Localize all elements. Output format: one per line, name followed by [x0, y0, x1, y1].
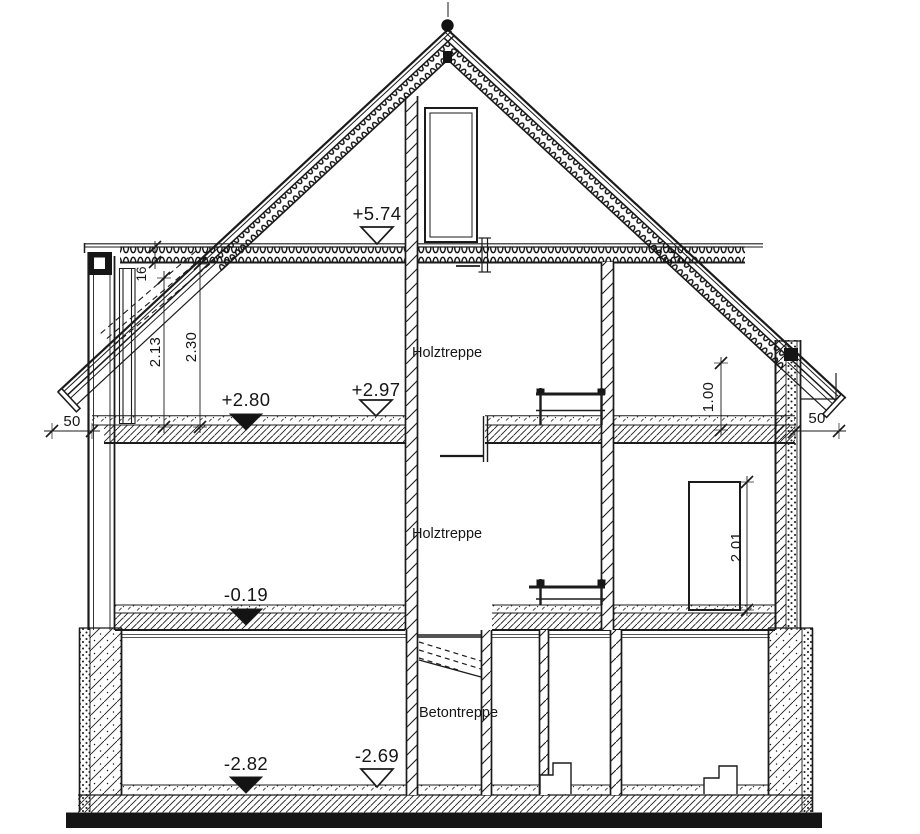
railing-ground-floor [529, 579, 606, 605]
elevation-marker-collar-ceiling [361, 227, 393, 244]
roof-slope-right [430, 30, 846, 418]
elevation-label-basement-finish-floor: -2.69 [355, 745, 399, 766]
basement-concrete-stair [418, 636, 481, 677]
section-drawing: +5.74 +2.97 +2.80 -0.19 -2.69 -2.82 2.13… [0, 0, 920, 834]
room-label-attic-stair: Holztreppe [412, 345, 482, 361]
dimension-label-attic-clear-height-a: 2.13 [147, 337, 164, 367]
architectural-section-sheet: +5.74 +2.97 +2.80 -0.19 -2.69 -2.82 2.13… [0, 0, 920, 834]
elevation-label-attic-raw-floor: +2.80 [222, 389, 271, 410]
dimension-label-eaves-overhang-left: 50 [63, 413, 80, 430]
elevation-markers [230, 227, 393, 793]
basement-wall-right [768, 628, 813, 812]
dimension-label-knee-wall-height: 1.00 [700, 382, 717, 412]
eaves-purlin-right [784, 348, 798, 361]
elevation-label-collar-ceiling: +5.74 [353, 203, 402, 224]
elevation-marker-basement-finish-floor [361, 769, 393, 787]
elevation-label-ground-raw-floor: -0.19 [224, 584, 268, 605]
basement-wall-left [79, 628, 122, 812]
dimension-label-collar-beam-depth: 16 [134, 266, 149, 281]
dimension-label-eaves-overhang-right: 50 [808, 410, 825, 427]
attic-floor-slab [92, 373, 836, 443]
stair-opening-trimmer [440, 416, 488, 462]
foundation-strip [66, 813, 822, 828]
dimension-label-attic-clear-height-b: 2.30 [183, 332, 200, 362]
ground-floor-slab [115, 605, 775, 638]
attic-door [425, 108, 477, 242]
room-label-ground-stair: Holztreppe [412, 526, 482, 542]
elevation-marker-attic-finish-floor [360, 400, 392, 416]
dimension-label-door-height: 2.01 [728, 532, 745, 562]
room-label-basement-stair: Betontreppe [419, 705, 498, 721]
elevation-label-basement-raw-floor: -2.82 [224, 753, 268, 774]
eaves-purlin-left [89, 252, 112, 275]
elevation-label-attic-finish-floor: +2.97 [352, 379, 401, 400]
